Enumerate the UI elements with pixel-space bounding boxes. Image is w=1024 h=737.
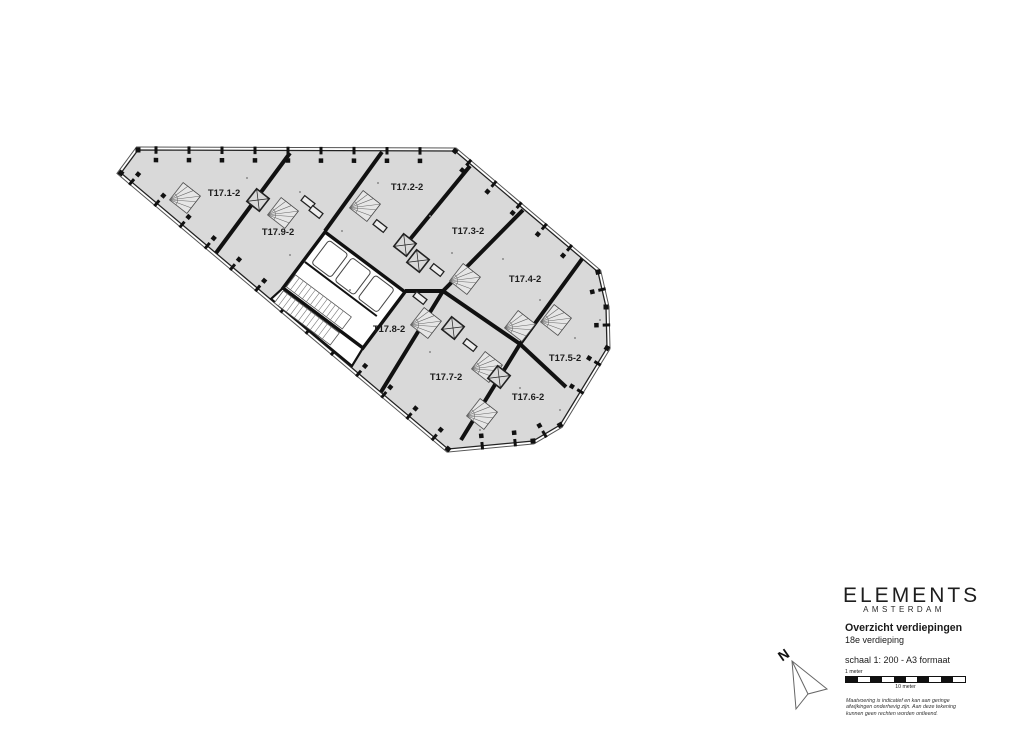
scale-bar-segment (929, 677, 941, 682)
scale-bar-segment (894, 677, 906, 682)
facade-tick (253, 158, 258, 163)
facade-tick (253, 147, 256, 155)
unit-label-t17-8-2: T17.8-2 (373, 323, 405, 334)
north-arrow-label: N (775, 645, 792, 664)
facade-tick (530, 438, 535, 443)
facade-tick (603, 323, 611, 326)
facade-tick (135, 147, 140, 152)
sheet-subtitle: 18e verdieping (845, 635, 904, 645)
scale-bar-block: 1 meter 10 meter (845, 669, 966, 690)
facade-tick (220, 158, 225, 163)
facade-tick (418, 159, 423, 164)
disclaimer-text: Maatvoering is indicatief en kan aan ger… (846, 698, 976, 717)
scale-note: schaal 1: 200 - A3 formaat (845, 655, 950, 665)
facade-tick (479, 433, 484, 438)
scale-bar (845, 676, 966, 683)
unit-label-t17-1-2: T17.1-2 (208, 187, 240, 198)
scale-bar-segment (953, 677, 965, 682)
unit-label-t17-9-2: T17.9-2 (262, 226, 294, 237)
scale-bar-segment (906, 677, 918, 682)
facade-tick (154, 158, 159, 163)
unit-label-t17-2-2: T17.2-2 (391, 181, 423, 192)
unit-label-t17-6-2: T17.6-2 (512, 391, 544, 402)
disclaimer-line: kunnen geen rechten worden ontleend. (846, 711, 976, 717)
facade-tick (154, 146, 157, 154)
unit-label-t17-5-2: T17.5-2 (549, 352, 581, 363)
drawing-sheet: T17.1-2 T17.2-2 T17.3-2 T17.4-2 T17.5-2 … (0, 0, 1024, 737)
brand-city: AMSTERDAM (843, 605, 965, 614)
unit-label-t17-3-2: T17.3-2 (452, 225, 484, 236)
facade-tick (187, 146, 190, 154)
north-arrow-dart (792, 661, 827, 709)
facade-tick (418, 147, 421, 155)
sheet-title: Overzicht verdiepingen (845, 622, 962, 634)
facade-tick (319, 147, 322, 155)
facade-tick (187, 158, 192, 163)
facade-tick (220, 147, 223, 155)
facade-tick (352, 158, 357, 163)
facade-tick (319, 158, 324, 163)
facade-tick (512, 430, 517, 435)
facade-tick (385, 147, 388, 155)
scale-bar-segment (941, 677, 953, 682)
north-arrow: N (775, 645, 827, 709)
scale-bar-label-10m: 10 meter (845, 684, 966, 690)
scale-bar-segment (917, 677, 929, 682)
facade-tick (385, 159, 390, 164)
scale-bar-segment (858, 677, 870, 682)
unit-label-t17-4-2: T17.4-2 (509, 273, 541, 284)
scale-bar-segment (882, 677, 894, 682)
scale-bar-segment (870, 677, 882, 682)
facade-tick (352, 147, 355, 155)
scale-bar-segment (846, 677, 858, 682)
facade-tick (603, 304, 608, 309)
scale-bar-label-1m: 1 meter (845, 669, 966, 675)
facade-tick (594, 323, 599, 328)
unit-label-t17-7-2: T17.7-2 (430, 371, 462, 382)
